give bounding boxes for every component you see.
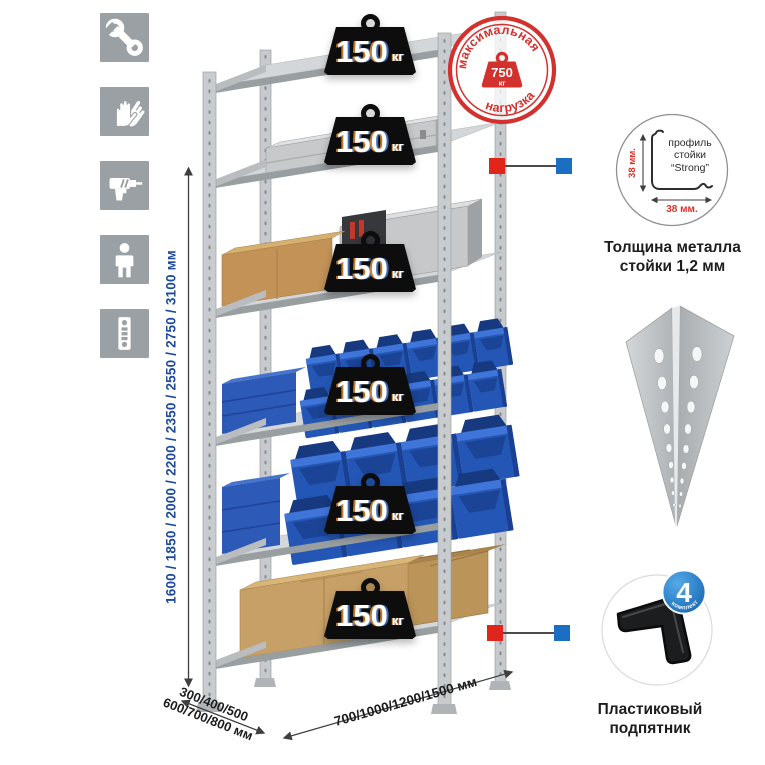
perforated-post-icon [100,309,149,358]
foot-caption-line1: Пластиковый [570,700,730,719]
profile-caption-line1: Толщина металла [585,238,760,257]
weight-value: 150 [336,253,388,284]
callout-red-square-bottom [487,625,503,641]
foot-caption-line2: подпятник [570,719,730,738]
post-profile-detail: 38 мм. 38 мм. профиль стойки “Strong” [610,112,734,236]
weight-unit: кг [392,613,404,628]
weight-value: 150 [336,600,388,631]
weight-value: 150 [336,36,388,67]
profile-label-line1: профиль [668,137,712,149]
infographic-canvas: 1600 / 1850 / 2000 / 2200 / 2350 / 2550 … [0,0,765,765]
height-dimension-label: 1600 / 1850 / 2000 / 2200 / 2350 / 2550 … [164,250,179,604]
drill-icon [100,161,149,210]
profile-dim-vertical: 38 мм. [627,148,638,178]
weight-value: 150 [336,376,388,407]
plastic-foot-detail: 4 в комплекте [596,566,724,694]
profile-label-line3: “Strong” [671,162,709,174]
foot-caption: Пластиковый подпятник [570,700,730,739]
shelf-load-weight-2: 150кг [324,104,416,165]
angle-post-image [602,296,752,536]
blue-crate-shelf5 [222,473,290,554]
stamp-unit: кг [499,79,506,88]
weight-unit: кг [392,49,404,64]
callout-blue-square-top [556,158,572,174]
callout-line-bottom [503,632,554,634]
weight-unit: кг [392,139,404,154]
shelf-load-weight-6: 150кг [324,578,416,639]
weight-value: 150 [336,126,388,157]
wrench-icon [100,13,149,62]
weight-value: 150 [336,495,388,526]
callout-line-top [505,165,556,167]
person-icon [100,235,149,284]
profile-dim-horizontal: 38 мм. [666,204,698,215]
callout-red-square-top [489,158,505,174]
profile-label-line2: стойки [674,149,706,161]
max-load-stamp: максимальная нагрузка 750 кг [438,4,566,132]
callout-blue-square-bottom [554,625,570,641]
weight-unit: кг [392,389,404,404]
shelf-load-weight-5: 150кг [324,473,416,534]
weight-unit: кг [392,266,404,281]
shelf-load-weight-3: 150кг [324,231,416,292]
shelf-load-weight-4: 150кг [324,354,416,415]
weight-unit: кг [392,508,404,523]
shelf-load-weight-1: 150кг [324,14,416,75]
profile-caption: Толщина металла стойки 1,2 мм [585,238,760,277]
profile-caption-line2: стойки 1,2 мм [585,257,760,276]
badge-value: 4 [676,577,692,608]
gloves-icon [100,87,149,136]
